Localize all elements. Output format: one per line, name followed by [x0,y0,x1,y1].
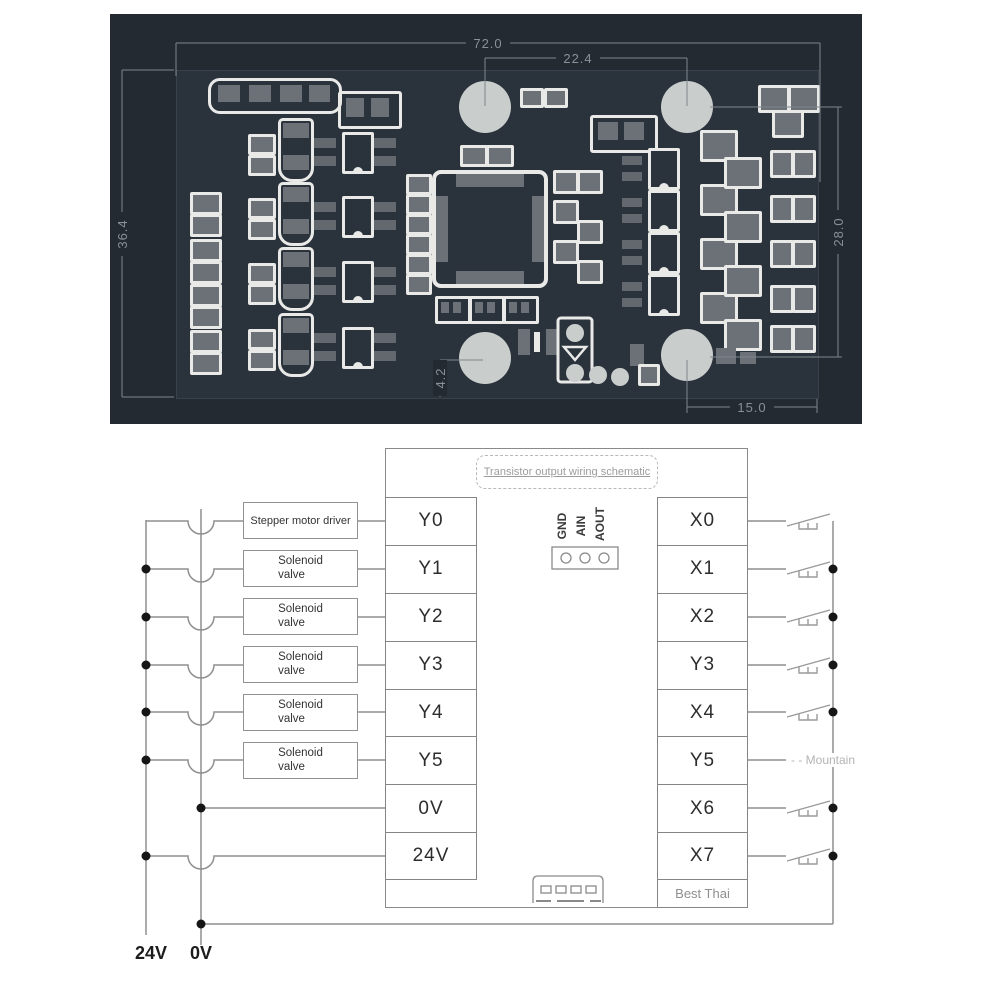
pcb-pad [406,234,432,255]
pcb-transistor [648,232,680,274]
junction-dot [829,661,838,670]
pcb-pad [622,172,642,181]
device-box-solenoid-2: Solenoidvalve [243,598,358,635]
pcb-pad [249,85,271,102]
pcb-pad [622,198,642,207]
schematic-title: Transistor output wiring schematic [484,466,651,478]
power-label-24v: 24V [135,943,167,964]
pcb-pad [374,285,396,295]
pcb-pad [460,145,488,167]
pcb-pad [534,332,540,352]
terminal-0v: 0V [385,784,477,832]
pcb-pad [520,88,544,108]
pcb-pad [622,298,642,307]
terminal-24v: 24V [385,832,477,880]
pcb-pad [248,350,276,371]
device-label: Solenoid [278,555,323,568]
junction-dot [142,661,151,670]
pcb-pad [792,150,816,178]
junction-dot [829,804,838,813]
terminal-y4: Y4 [385,689,477,737]
pcb-transistor [342,196,374,238]
pin-label-gnd: GND [555,513,569,540]
pcb-pad [553,200,579,224]
pcb-pad [248,155,276,176]
junction-dot [829,613,838,622]
mounting-hole [661,81,713,133]
device-label: Solenoid [278,699,323,712]
junction-dot [829,852,838,861]
dim-hole-spacing-right: 28.0 [831,217,846,246]
device-label: valve [278,617,323,630]
mounting-hole [459,332,511,384]
terminal-x0: X0 [657,497,748,545]
pcb-pad [622,256,642,265]
pcb-pad [374,202,396,212]
junction-dot [197,920,206,929]
wire-24v-terminal [146,856,385,869]
switch-body [799,810,817,816]
schematic-title-box: Transistor output wiring schematic [476,455,658,489]
pcb-pad [374,333,396,343]
pcb-pad [724,211,762,243]
pcb-pad [487,302,495,313]
pcb-pad [788,85,820,113]
pcb-pad [546,329,558,355]
pcb-pad [374,351,396,361]
pcb-pad [314,220,336,230]
pcb-pad [190,239,222,262]
pcb-pad [475,302,483,313]
pcb-pad [453,302,461,313]
pcb-pad [309,85,330,102]
device-box-solenoid-1: Solenoidvalve [243,550,358,587]
pcb-pad [622,240,642,249]
pcb-pad [544,88,568,108]
junction-dot [142,708,151,717]
pcb-pad [792,285,816,313]
dim-board-height: 36.4 [115,219,130,248]
pcb-transistor [648,274,680,316]
pcb-transistor [342,132,374,174]
mounting-hole [661,329,713,381]
pcb-pad [314,351,336,361]
pcb-pad [630,344,644,366]
pcb-pad [406,174,432,195]
junction-dot [142,852,151,861]
terminal-x4: X4 [657,689,748,737]
pcb-pad [724,319,762,351]
watermark-mountain: - - Mountain [789,753,857,767]
terminal-y2: Y2 [385,593,477,641]
pcb-pad [792,195,816,223]
terminal-x1: X1 [657,545,748,593]
pcb-pad [577,260,603,284]
pcb-pad [770,195,794,223]
pcb-pad [622,214,642,223]
switch-body [799,619,817,625]
device-box-stepper-driver: Stepper motor driver [243,502,358,539]
pcb-pad [598,122,618,140]
pcb-pad [190,284,222,307]
terminal-y0: Y0 [385,497,477,545]
pcb-transistor [342,327,374,369]
pcb-pad [724,265,762,297]
pcb-pad [314,267,336,277]
terminal-x3: Y3 [657,641,748,689]
junction-dot [829,708,838,717]
switch-body [799,714,817,720]
pcb-pad [314,138,336,148]
switch-body [799,571,817,577]
pcb-pad [553,170,579,194]
pcb-pad [374,267,396,277]
pcb-pad [770,285,794,313]
wire-output-row [146,569,243,582]
terminal-y1: Y1 [385,545,477,593]
switch-body [799,667,817,673]
device-box-solenoid-4: Solenoidvalve [243,694,358,731]
pcb-pad [622,282,642,291]
pcb-pad [716,348,736,364]
pcb-pad [314,156,336,166]
pcb-pad [248,134,276,155]
watermark-best-thai: Best Thai [657,880,748,908]
pcb-pad [509,302,517,313]
wire-output-row [146,712,243,725]
pcb-pad [190,352,222,375]
terminal-x2: X2 [657,593,748,641]
pcb-pad [441,302,449,313]
switch-body [799,523,817,529]
pcb-capacitor [278,247,314,311]
pcb-capacitor [278,313,314,377]
device-label: valve [278,665,323,678]
pcb-pad [190,192,222,215]
device-label: Solenoid [278,603,323,616]
pcb-pad [770,240,794,268]
product-diagram-image: 72.0 22.4 36.4 28.0 15.0 4.2 [0,0,1000,1000]
pcb-pad [638,364,660,386]
pcb-pad [553,240,579,264]
pcb-pad [521,302,529,313]
pcb-pad [190,261,222,284]
device-label: Stepper motor driver [250,515,350,527]
pcb-pad [248,263,276,284]
power-label-0v: 0V [190,943,212,964]
wire-output-row [146,617,243,630]
terminal-x6: X6 [657,784,748,832]
wire-output-row [146,521,243,534]
pcb-capacitor [278,118,314,182]
pcb-pad [371,98,389,117]
pcb-pad [248,284,276,305]
pcb-capacitor [278,182,314,246]
pcb-transistor [648,148,680,190]
device-label: valve [278,713,323,726]
pcb-pad [770,325,794,353]
junction-dot [142,565,151,574]
pcb-transistor [648,190,680,232]
pcb-pad [577,170,603,194]
pcb-pad [374,220,396,230]
pcb-pad [772,110,804,138]
switch-body [799,858,817,864]
pcb-pad [248,219,276,240]
pcb-pad [622,156,642,165]
pcb-transistor [342,261,374,303]
junction-dot [829,565,838,574]
device-box-solenoid-5: Solenoidvalve [243,742,358,779]
pcb-pad [190,214,222,237]
pcb-pad [724,157,762,189]
pcb-pad [374,156,396,166]
terminal-x5: Y5 [657,736,748,784]
terminal-y3: Y3 [385,641,477,689]
pcb-pad [190,306,222,329]
pcb-pad [758,85,790,113]
pcb-pad [280,85,302,102]
pcb-pad [248,198,276,219]
pcb-pad [406,194,432,215]
dim-hole-spacing-top: 22.4 [563,51,592,66]
pcb-pad [624,122,644,140]
pcb-pad [770,150,794,178]
device-label: valve [278,569,323,582]
pin-label-ain: AIN [574,516,588,537]
wire-output-row [146,760,243,773]
junction-dot [197,804,206,813]
dim-offset-bottom-right: 15.0 [737,400,766,415]
terminal-y5: Y5 [385,736,477,784]
pcb-pad [374,138,396,148]
output-terminal-column: Y0 Y1 Y2 Y3 Y4 Y5 0V 24V [385,497,477,880]
pcb-pad [406,214,432,235]
dim-board-width: 72.0 [473,36,502,51]
pcb-pad [406,274,432,295]
input-terminal-column: X0 X1 X2 Y3 X4 Y5 X6 X7 Best Thai [657,497,748,908]
pcb-pad [740,352,756,364]
junction-dot [142,756,151,765]
device-label: Solenoid [278,651,323,664]
pcb-pad [314,333,336,343]
device-box-solenoid-3: Solenoidvalve [243,646,358,683]
pcb-main-chip [432,170,548,288]
pcb-pad [486,145,514,167]
pcb-pad [248,329,276,350]
pcb-pad [792,325,816,353]
pcb-pad [577,220,603,244]
limit-switch-symbols [787,514,830,864]
pcb-pad [518,329,530,355]
pcb-pad [792,240,816,268]
pcb-pad [314,202,336,212]
device-label: valve [278,761,323,774]
wire-output-row [146,665,243,678]
junction-dot [142,613,151,622]
pcb-pad [190,330,222,353]
terminal-x7: X7 [657,832,748,880]
device-label: Solenoid [278,747,323,760]
pcb-pad [346,98,364,117]
pin-label-aout: AOUT [593,507,607,541]
mounting-hole [459,81,511,133]
pcb-photo-panel: 72.0 22.4 36.4 28.0 15.0 4.2 [110,14,862,424]
pcb-pad [406,254,432,275]
pcb-pad [314,285,336,295]
pcb-pad [218,85,240,102]
